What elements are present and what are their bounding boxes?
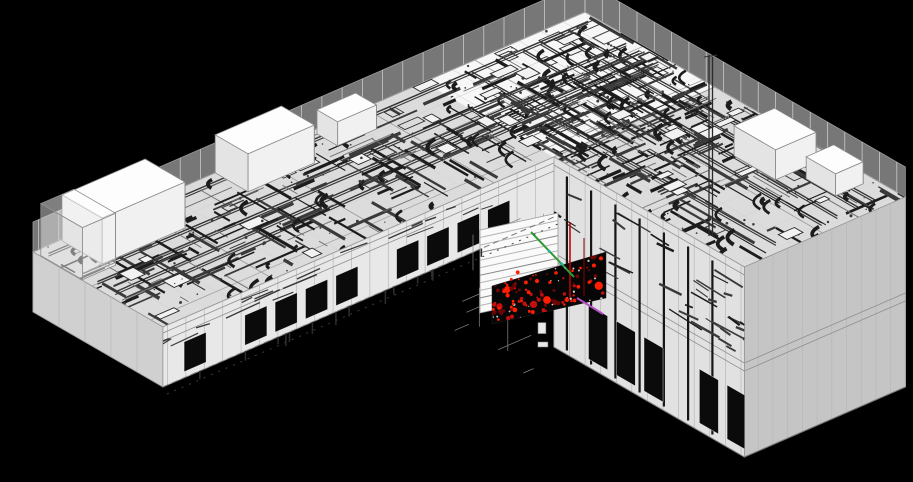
wireframe-scene <box>0 0 913 482</box>
bim-model-viewport[interactable] <box>0 0 913 482</box>
